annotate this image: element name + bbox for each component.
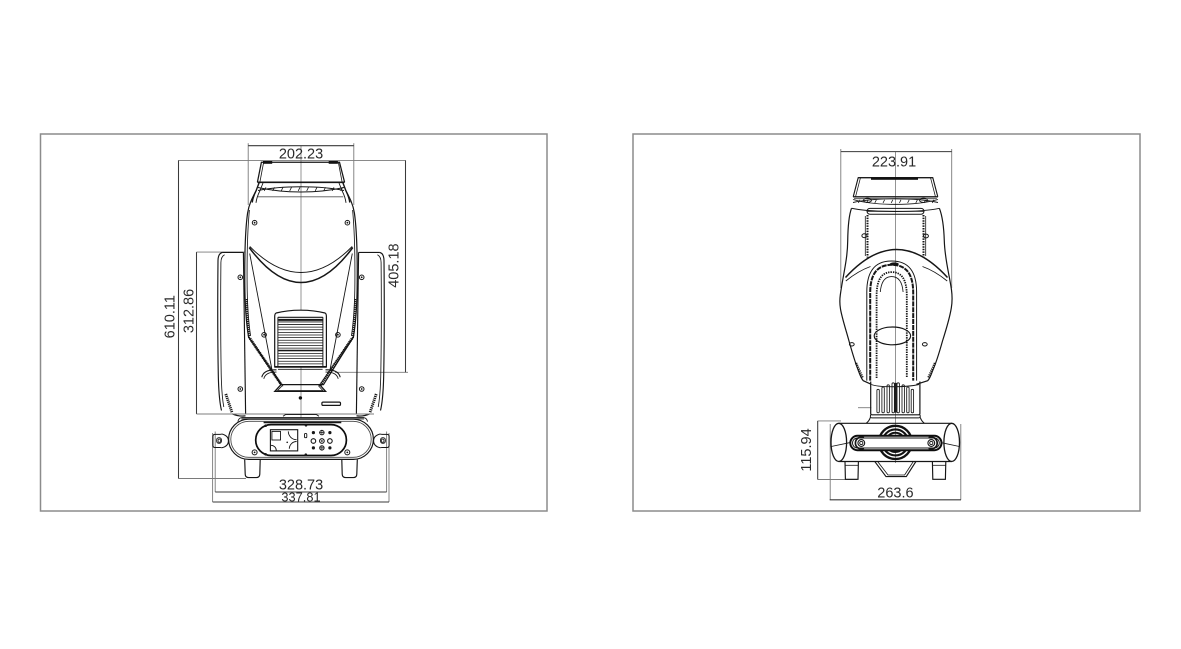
svg-text:202.23: 202.23 bbox=[279, 147, 323, 163]
svg-text:405.18: 405.18 bbox=[387, 243, 403, 287]
svg-text:337.81: 337.81 bbox=[281, 490, 320, 505]
svg-text:610.11: 610.11 bbox=[163, 295, 179, 338]
svg-text:115.94: 115.94 bbox=[799, 428, 815, 471]
svg-text:312.86: 312.86 bbox=[182, 289, 198, 333]
svg-text:223.91: 223.91 bbox=[872, 155, 916, 171]
svg-text:263.6: 263.6 bbox=[877, 486, 913, 502]
